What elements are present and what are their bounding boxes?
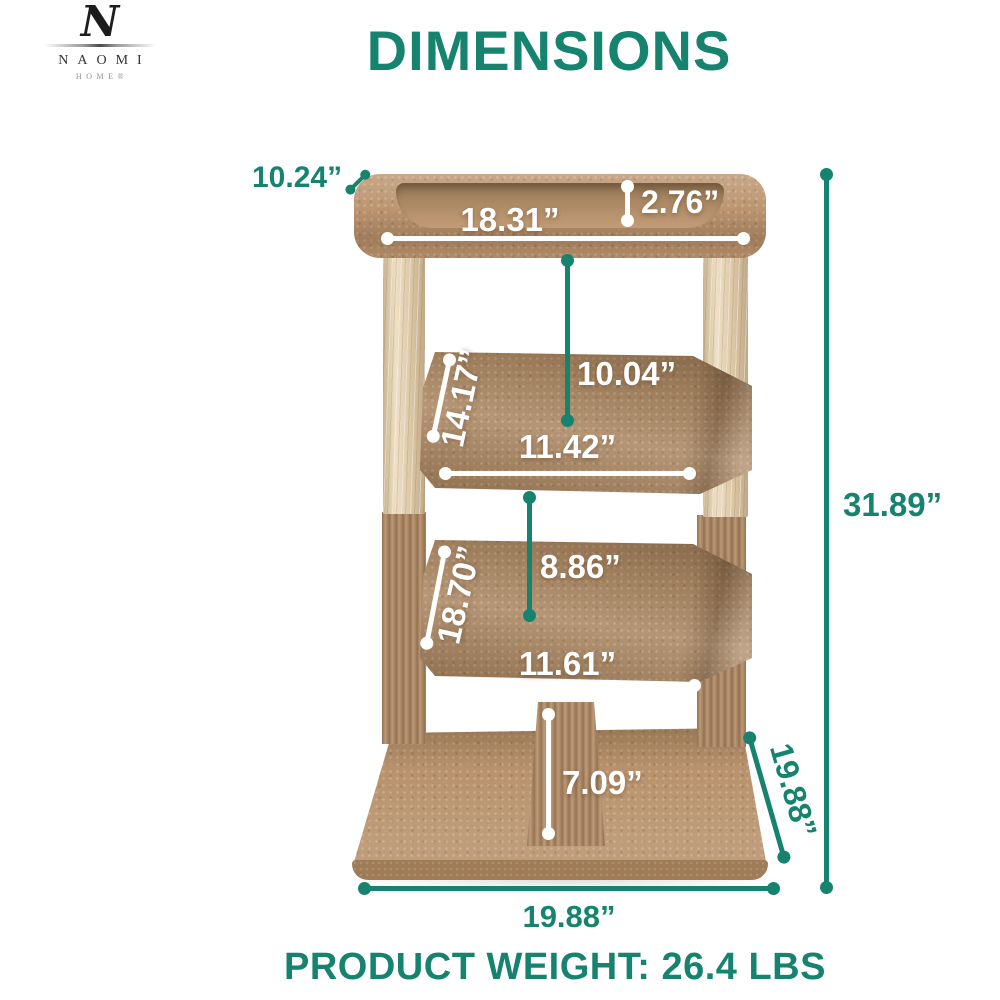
- measurement-base-width: 19.88”: [362, 899, 776, 935]
- measurement-overall-height: 31.89”: [843, 486, 942, 524]
- left-post-lower: [382, 512, 426, 744]
- measurement-top-to-middle-spacing: 10.04”: [577, 355, 676, 393]
- base-front-face: [352, 860, 768, 880]
- measure-line-center-post-height: [546, 712, 551, 836]
- measure-line-top-platform-width: [385, 236, 746, 241]
- dimensions-infographic: N NAOMI HOME® DIMENSIONS 10.24” 18.31” 2…: [0, 0, 1000, 1000]
- measure-line-middle-to-lower-spacing: [527, 495, 532, 618]
- measure-line-overall-height: [824, 172, 829, 890]
- measurement-middle-platform-width: 11.42”: [443, 428, 692, 466]
- measurement-top-lip-height: 2.76”: [641, 184, 719, 221]
- measure-line-middle-platform-width: [443, 471, 692, 476]
- measurement-top-platform-width: 18.31”: [420, 201, 600, 239]
- measurement-middle-to-lower-spacing: 8.86”: [540, 548, 621, 586]
- measure-line-lower-platform-width: [438, 683, 697, 688]
- measurement-center-post-height: 7.09”: [562, 764, 643, 802]
- measure-line-top-to-middle-spacing: [565, 258, 570, 423]
- product-weight-text: PRODUCT WEIGHT: 26.4 LBS: [110, 946, 1000, 989]
- measurement-base-depth: 19.88”: [761, 735, 825, 845]
- measure-line-top-lip-height: [625, 184, 630, 223]
- page-title: DIMENSIONS: [98, 18, 1000, 83]
- measurement-top-platform-depth: 10.24”: [252, 161, 342, 195]
- measurement-lower-platform-width: 11.61”: [438, 645, 697, 683]
- left-post-upper: [383, 256, 425, 514]
- measure-line-base-width: [362, 886, 776, 891]
